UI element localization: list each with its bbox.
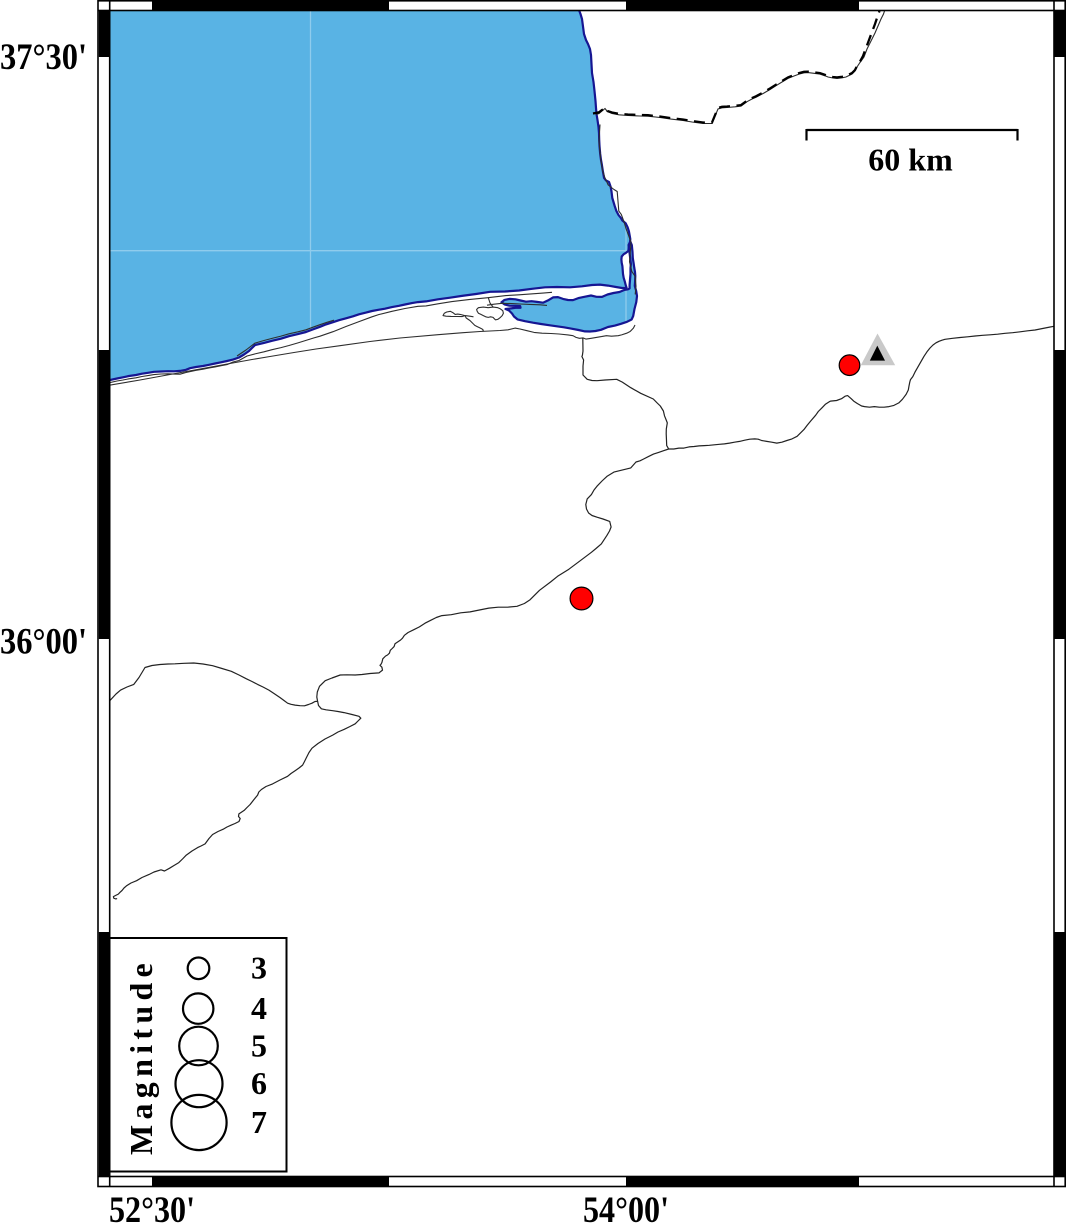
svg-text:6: 6 bbox=[251, 1065, 267, 1101]
svg-text:4: 4 bbox=[251, 990, 267, 1026]
svg-text:52°30': 52°30' bbox=[109, 1190, 195, 1224]
svg-text:7: 7 bbox=[251, 1104, 267, 1140]
svg-text:3: 3 bbox=[251, 950, 267, 986]
svg-text:60 km: 60 km bbox=[868, 142, 953, 178]
svg-text:Magnitude: Magnitude bbox=[123, 958, 159, 1155]
svg-text:54°00': 54°00' bbox=[583, 1190, 669, 1224]
svg-text:37°30': 37°30' bbox=[0, 37, 87, 78]
svg-text:36°00': 36°00' bbox=[0, 622, 87, 663]
svg-text:5: 5 bbox=[251, 1028, 267, 1064]
